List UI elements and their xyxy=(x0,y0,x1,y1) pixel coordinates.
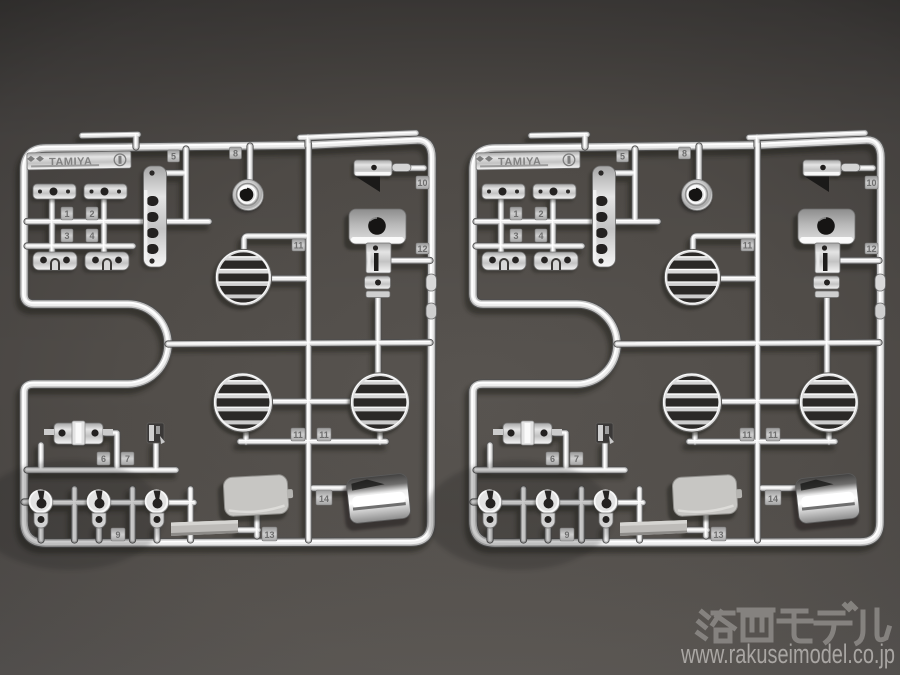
svg-text:www.rakuseimodel.co.jp: www.rakuseimodel.co.jp xyxy=(680,639,895,669)
